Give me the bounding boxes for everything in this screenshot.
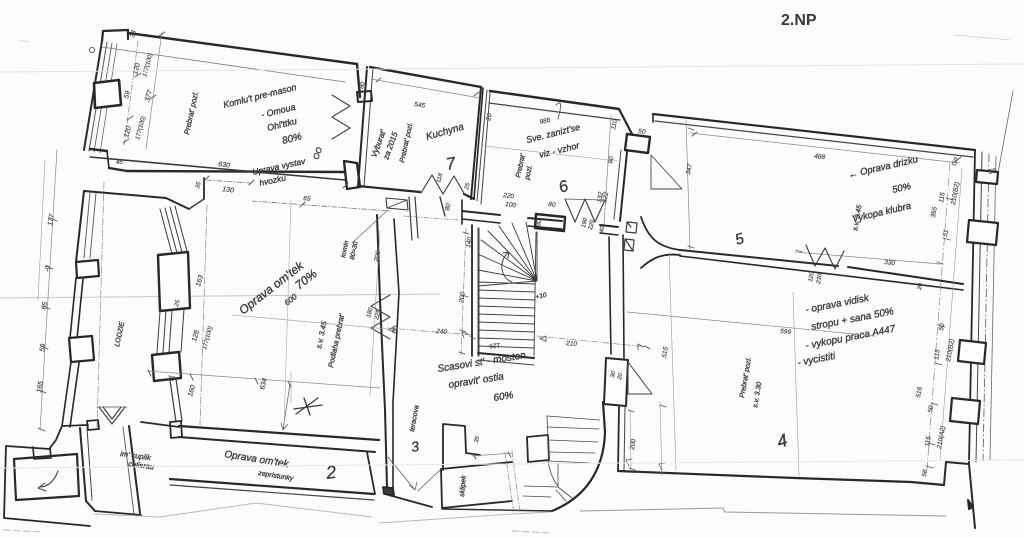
- svg-text:80: 80: [548, 201, 557, 209]
- svg-text:129: 129: [489, 341, 501, 349]
- svg-text:599: 599: [780, 328, 792, 336]
- svg-text:65: 65: [303, 195, 312, 203]
- svg-text:240: 240: [435, 328, 448, 336]
- svg-text:50: 50: [638, 128, 647, 136]
- svg-text:-0: -0: [44, 265, 52, 272]
- svg-text:2.NP: 2.NP: [781, 12, 817, 29]
- svg-text:45: 45: [116, 160, 123, 166]
- svg-text:70: 70: [167, 375, 176, 383]
- svg-text:65: 65: [41, 301, 49, 310]
- svg-text:330: 330: [884, 259, 896, 267]
- svg-text:210: 210: [565, 340, 578, 348]
- svg-text:468: 468: [814, 153, 826, 161]
